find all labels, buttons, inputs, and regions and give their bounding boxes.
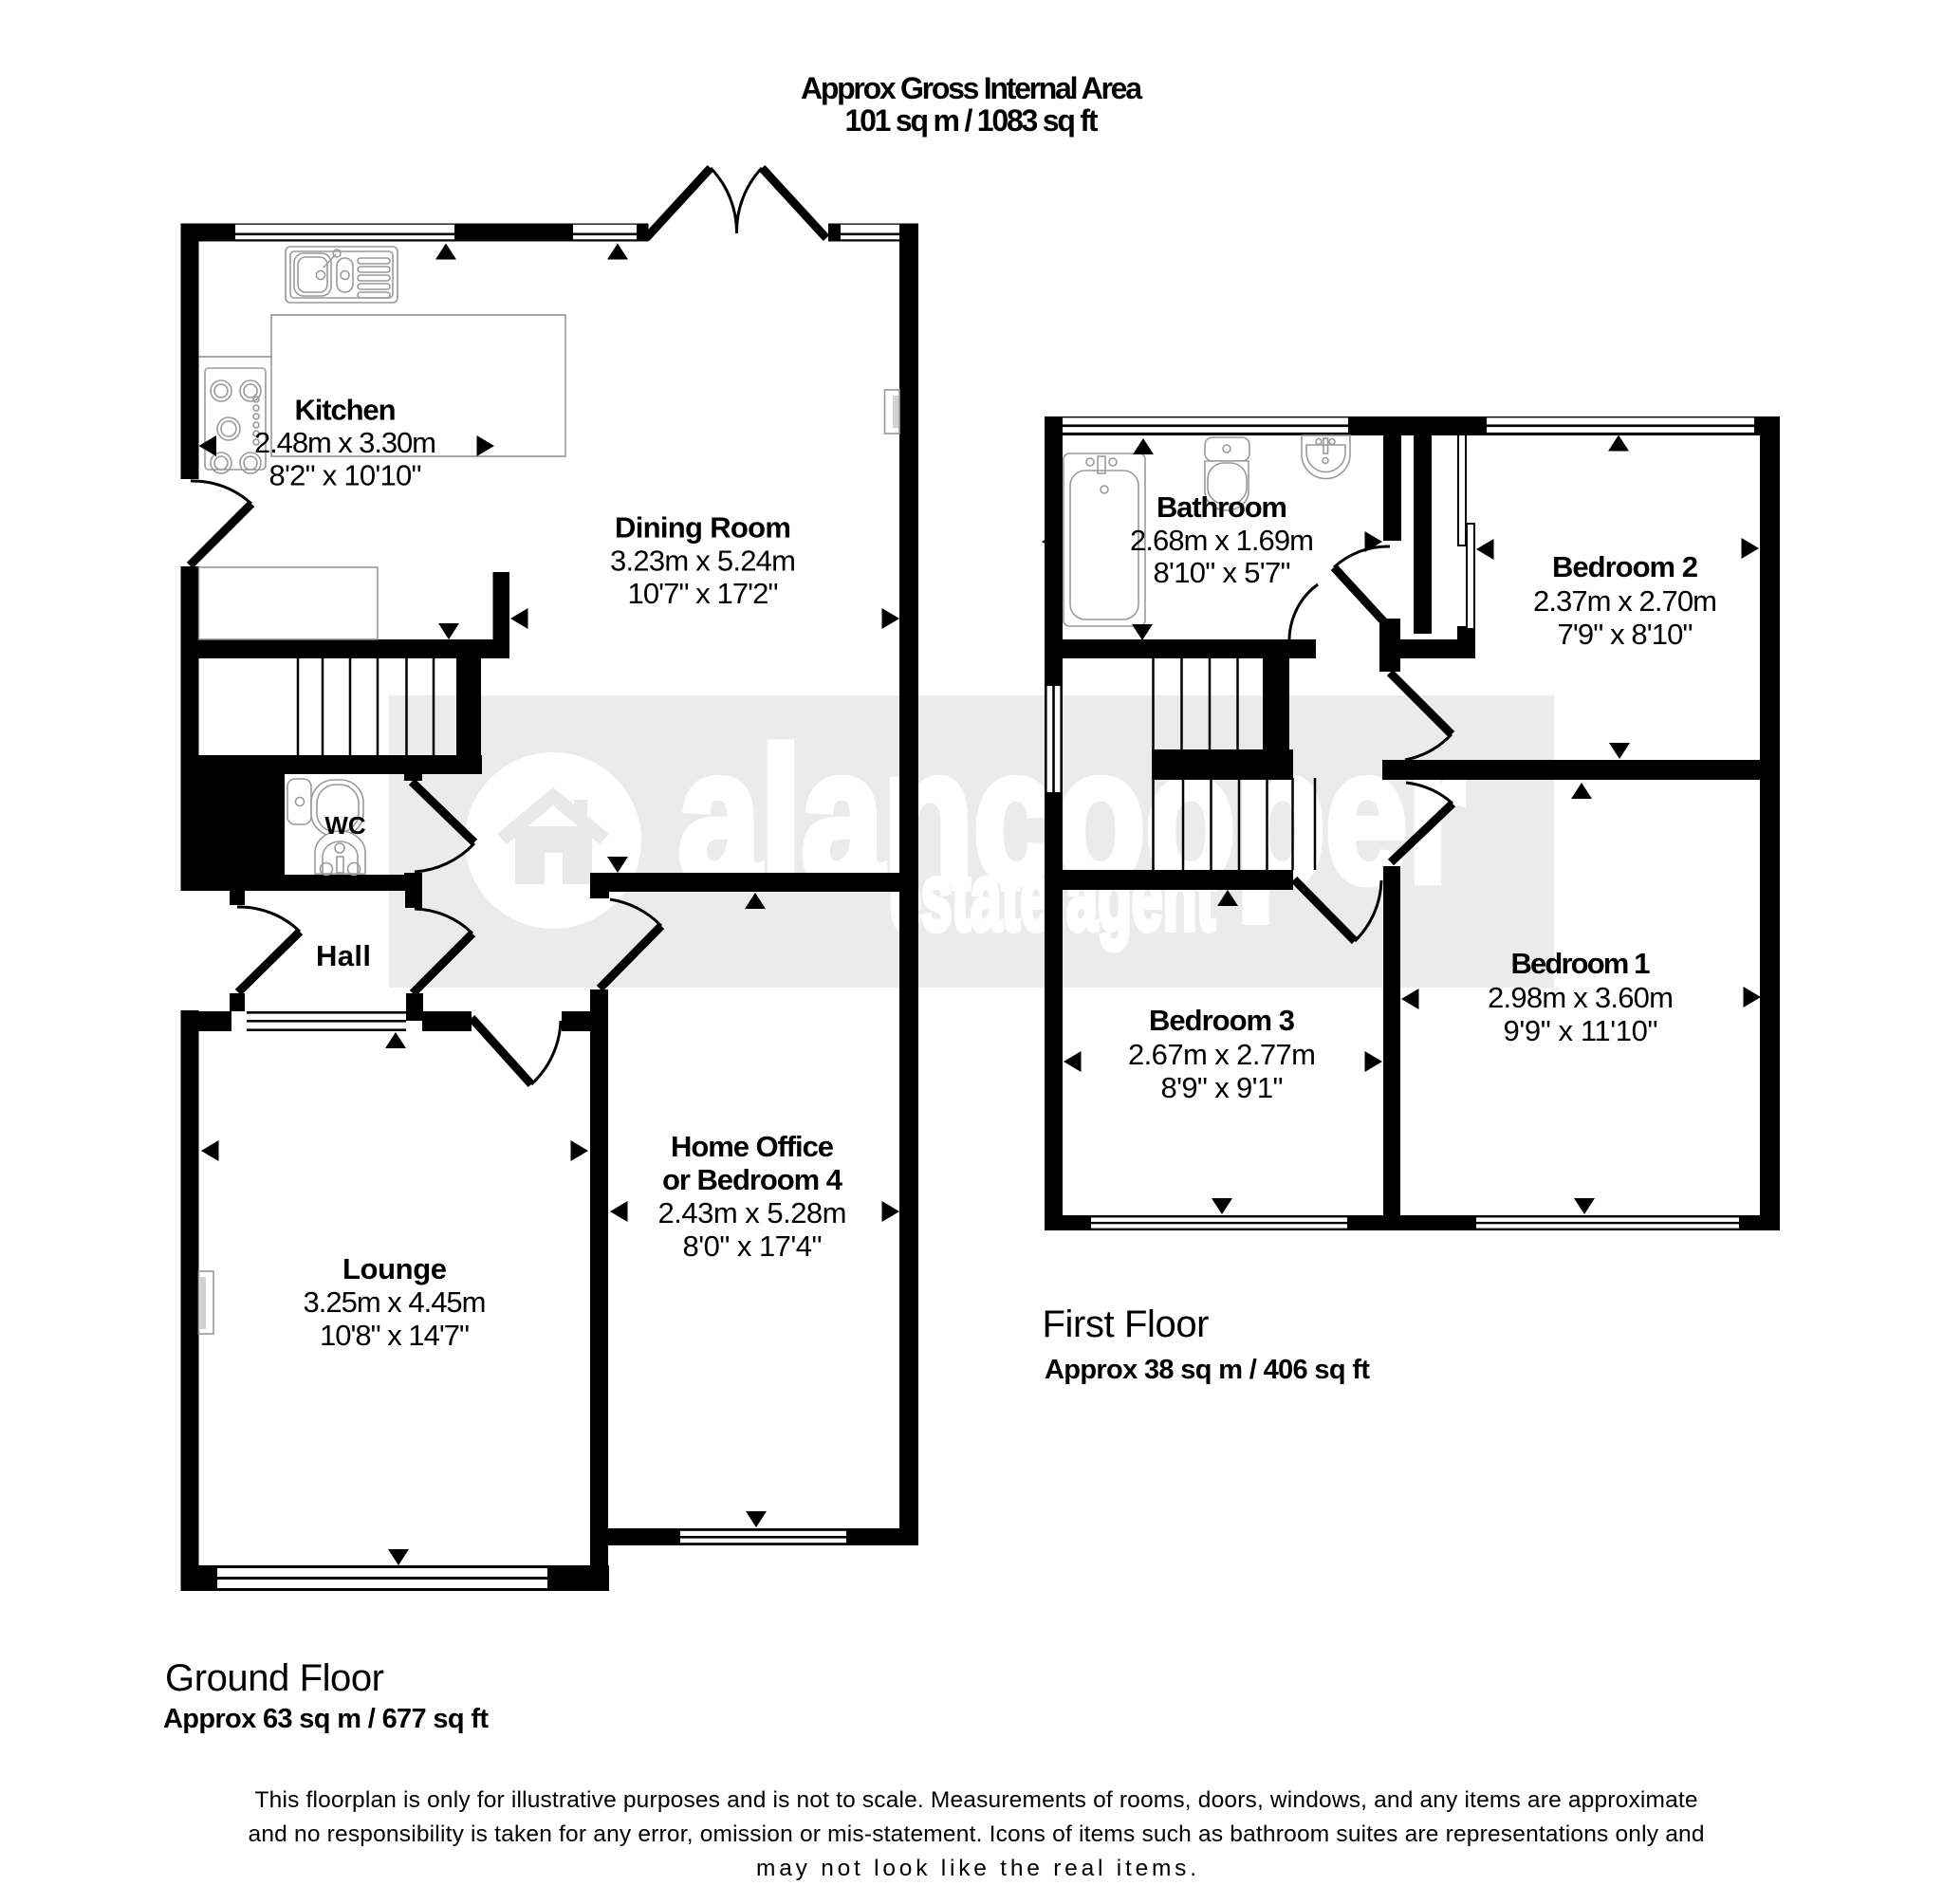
svg-text:Bathroom: Bathroom xyxy=(1157,490,1287,524)
svg-text:8'9" x 9'1": 8'9" x 9'1" xyxy=(1161,1071,1284,1104)
svg-text:10'7" x 17'2": 10'7" x 17'2" xyxy=(628,577,779,610)
svg-text:or Bedroom 4: or Bedroom 4 xyxy=(662,1163,843,1196)
svg-text:Approx 38 sq m / 406 sq ft: Approx 38 sq m / 406 sq ft xyxy=(1045,1355,1370,1385)
svg-text:9'9" x 11'10": 9'9" x 11'10" xyxy=(1504,1014,1658,1047)
svg-text:First Floor: First Floor xyxy=(1043,1303,1210,1345)
svg-text:2.37m x 2.70m: 2.37m x 2.70m xyxy=(1533,584,1717,618)
svg-text:Bedroom 3: Bedroom 3 xyxy=(1149,1004,1295,1037)
svg-text:Approx 63 sq m / 677 sq ft: Approx 63 sq m / 677 sq ft xyxy=(163,1704,489,1734)
svg-text:may not look like the real ite: may not look like the real items. xyxy=(756,1856,1196,1881)
svg-text:8'2" x 10'10": 8'2" x 10'10" xyxy=(269,459,422,492)
svg-text:3.25m x 4.45m: 3.25m x 4.45m xyxy=(304,1285,487,1319)
svg-text:101 sq m / 1083 sq ft: 101 sq m / 1083 sq ft xyxy=(845,103,1099,138)
svg-text:Kitchen: Kitchen xyxy=(295,394,397,427)
svg-text:Dining Room: Dining Room xyxy=(615,511,791,545)
svg-text:WC: WC xyxy=(324,811,366,840)
svg-text:2.98m x 3.60m: 2.98m x 3.60m xyxy=(1488,981,1674,1014)
svg-text:7'9" x 8'10": 7'9" x 8'10" xyxy=(1558,618,1693,651)
svg-text:Hall: Hall xyxy=(316,939,371,972)
svg-text:Home Office: Home Office xyxy=(671,1130,834,1163)
svg-text:2.67m x 2.77m: 2.67m x 2.77m xyxy=(1128,1038,1316,1071)
svg-text:and no responsibility is taken: and no responsibility is taken for any e… xyxy=(249,1821,1705,1847)
svg-text:This floorplan is only for ill: This floorplan is only for illustrative … xyxy=(255,1787,1698,1813)
svg-text:3.23m x 5.24m: 3.23m x 5.24m xyxy=(610,545,796,578)
svg-text:Bedroom 1: Bedroom 1 xyxy=(1511,947,1651,980)
svg-text:Ground Floor: Ground Floor xyxy=(165,1657,384,1699)
svg-text:Bedroom 2: Bedroom 2 xyxy=(1552,550,1698,583)
svg-text:2.48m x 3.30m: 2.48m x 3.30m xyxy=(254,426,436,459)
svg-text:8'10" x 5'7": 8'10" x 5'7" xyxy=(1154,556,1291,589)
svg-text:2.43m x 5.28m: 2.43m x 5.28m xyxy=(658,1196,847,1229)
svg-text:Lounge: Lounge xyxy=(342,1252,447,1285)
svg-text:10'8" x 14'7": 10'8" x 14'7" xyxy=(320,1319,470,1352)
svg-text:2.68m x 1.69m: 2.68m x 1.69m xyxy=(1130,524,1314,557)
svg-text:8'0" x 17'4": 8'0" x 17'4" xyxy=(683,1229,823,1263)
svg-text:Approx Gross Internal Area: Approx Gross Internal Area xyxy=(801,71,1142,105)
